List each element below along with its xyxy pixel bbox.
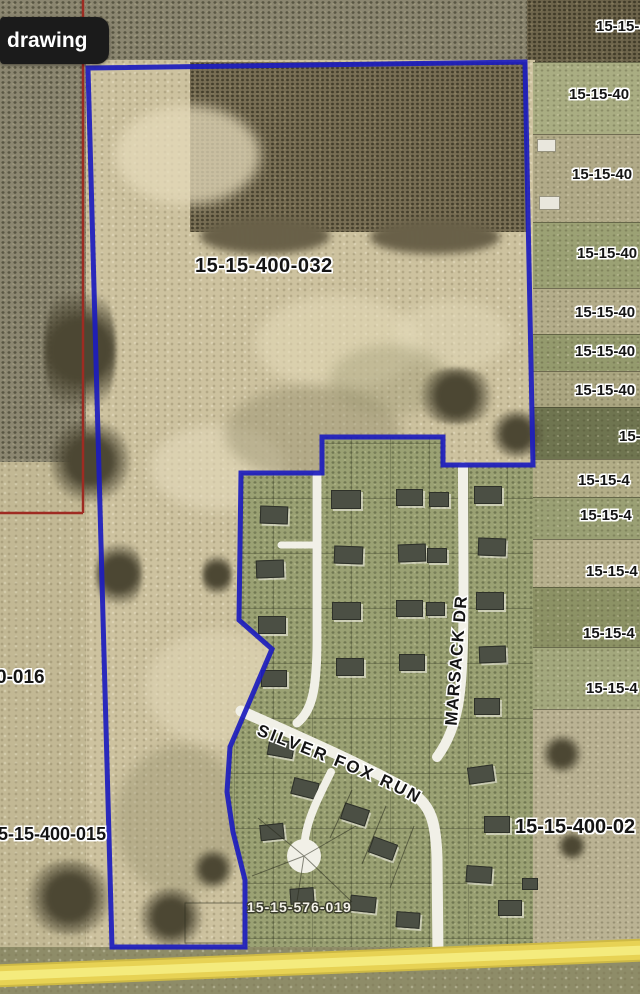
yellow-road: [0, 950, 640, 976]
subdivision-roads: [241, 467, 464, 956]
road-court-spur: [305, 772, 331, 840]
drawing-tool-chip[interactable]: drawing: [0, 17, 109, 64]
road-silver-fox: [241, 711, 438, 956]
parcel-label-right: 15-15-4: [586, 564, 638, 580]
parcel-label-right: 15-15-40: [569, 87, 629, 103]
parcel-label-right: 15-15-4: [580, 508, 632, 524]
parcel-label-subdivision: 15-15-576-019: [247, 899, 352, 915]
parcel-label-right: 15-15-40: [575, 383, 635, 399]
street-label-silver-fox: SILVER FOX RUN: [255, 721, 426, 808]
parcel-label-right: 15-15-40: [572, 167, 632, 183]
street-label-silver-fox-text: SILVER FOX RUN: [255, 721, 426, 808]
lot-line: [330, 790, 414, 888]
parcel-label-right: 15-15-: [596, 19, 639, 35]
parcel-label-right: 15-15-40: [575, 344, 635, 360]
map-vector-overlay: MARSACK DR SILVER FOX RUN: [0, 0, 640, 994]
lot-rect: [185, 903, 243, 943]
drawing-tool-chip-label: drawing: [7, 29, 88, 53]
section-line-red: [0, 0, 83, 513]
road-interior: [297, 476, 317, 723]
parcel-label-left-016: 0-016: [0, 668, 45, 688]
parcel-label-right: 15-15-4: [583, 626, 635, 642]
parcel-label-right: 15-: [619, 429, 640, 445]
parcel-label-left-015: 5-15-400-015: [0, 825, 106, 844]
parcel-label-bottom-right: 15-15-400-02: [515, 817, 635, 838]
parcel-label-right: 15-15-40: [575, 305, 635, 321]
parcel-label-right: 15-15-4: [578, 473, 630, 489]
parcel-label-main: 15-15-400-032: [195, 256, 333, 277]
parcel-label-right: 15-15-40: [577, 246, 637, 262]
map-canvas[interactable]: MARSACK DR SILVER FOX RUN 15-15-400-032 …: [0, 0, 640, 994]
parcel-label-right: 15-15-4: [586, 681, 638, 697]
